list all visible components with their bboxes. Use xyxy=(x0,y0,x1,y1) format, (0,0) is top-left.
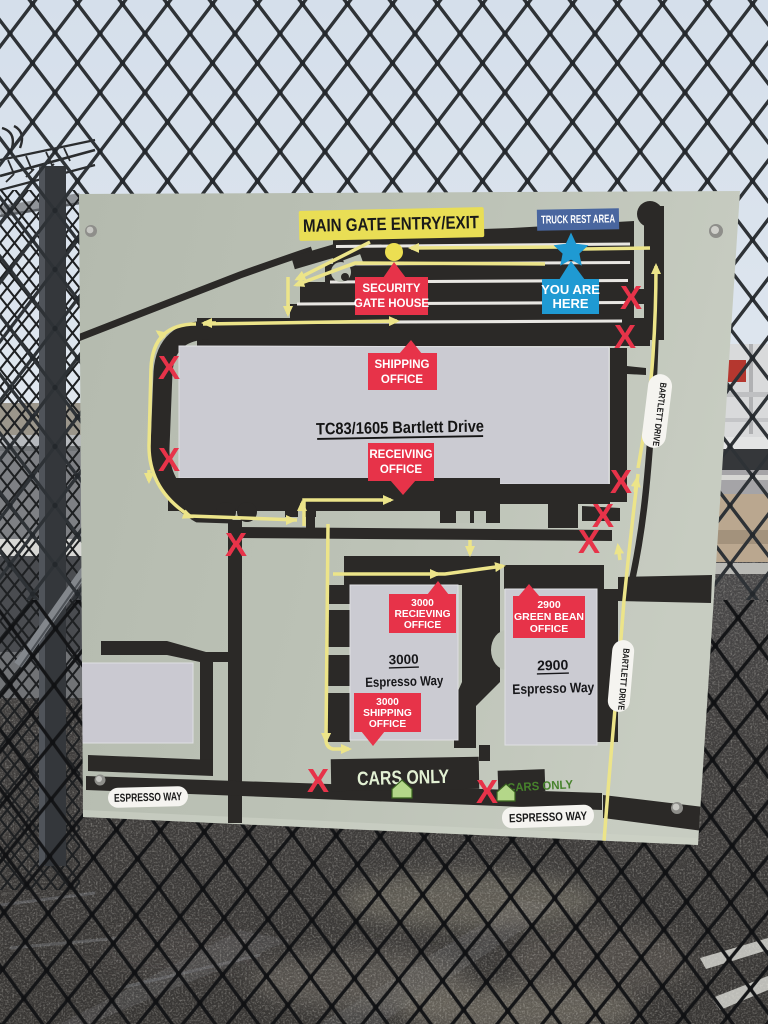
svg-text:X: X xyxy=(158,441,180,478)
svg-text:X: X xyxy=(476,773,498,810)
svg-text:SECURITY: SECURITY xyxy=(362,283,420,295)
svg-text:OFFICE: OFFICE xyxy=(381,374,423,386)
svg-text:OFFICE: OFFICE xyxy=(530,623,569,635)
svg-text:3000: 3000 xyxy=(411,598,434,609)
svg-text:2900: 2900 xyxy=(537,599,561,611)
svg-text:GREEN BEAN: GREEN BEAN xyxy=(514,611,584,623)
svg-text:Espresso Way: Espresso Way xyxy=(512,679,595,697)
svg-text:X: X xyxy=(620,279,642,316)
svg-text:TRUCK REST AREA: TRUCK REST AREA xyxy=(541,213,615,226)
svg-text:RECIEVING: RECIEVING xyxy=(394,609,450,620)
svg-text:YOU ARE: YOU ARE xyxy=(541,282,600,297)
svg-text:GATE HOUSE: GATE HOUSE xyxy=(354,298,430,310)
svg-text:X: X xyxy=(614,318,636,355)
svg-text:OFFICE: OFFICE xyxy=(369,719,407,730)
svg-text:ESPRESSO WAY: ESPRESSO WAY xyxy=(114,791,183,805)
svg-text:X: X xyxy=(158,349,180,386)
svg-text:X: X xyxy=(225,526,247,563)
svg-text:X: X xyxy=(578,523,600,560)
svg-text:TC83/1605 Bartlett Drive: TC83/1605 Bartlett Drive xyxy=(316,418,484,439)
svg-text:HERE: HERE xyxy=(552,296,588,311)
svg-text:SHIPPING: SHIPPING xyxy=(375,359,430,371)
svg-text:2900: 2900 xyxy=(537,657,569,674)
svg-text:OFFICE: OFFICE xyxy=(404,620,442,631)
svg-text:X: X xyxy=(307,762,329,799)
svg-text:MAIN GATE ENTRY/EXIT: MAIN GATE ENTRY/EXIT xyxy=(303,212,479,236)
svg-text:X: X xyxy=(610,463,632,500)
svg-text:SHIPPING: SHIPPING xyxy=(363,708,412,719)
svg-text:RECEIVING: RECEIVING xyxy=(369,449,432,461)
svg-text:Espresso Way: Espresso Way xyxy=(365,673,444,690)
svg-text:3000: 3000 xyxy=(388,652,418,668)
svg-text:3000: 3000 xyxy=(376,697,399,708)
svg-text:OFFICE: OFFICE xyxy=(380,464,422,476)
svg-text:ESPRESSO WAY: ESPRESSO WAY xyxy=(509,809,587,826)
